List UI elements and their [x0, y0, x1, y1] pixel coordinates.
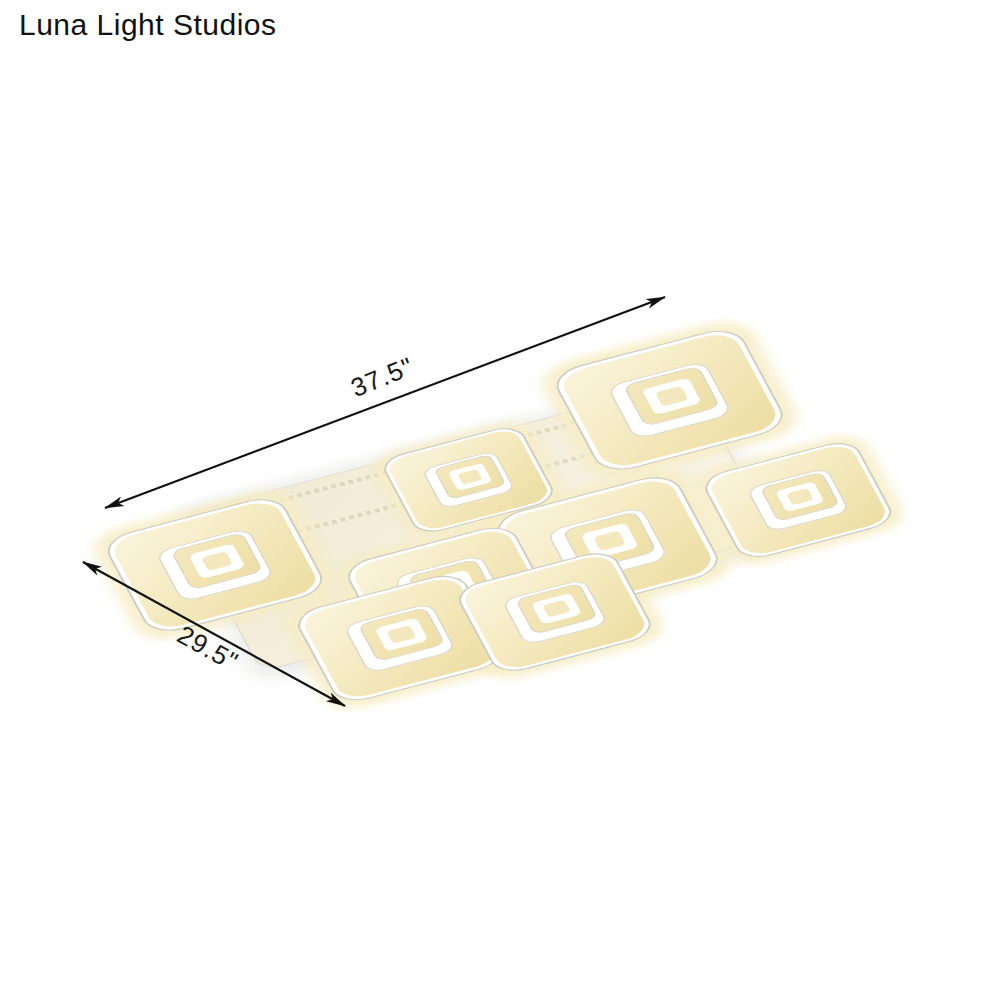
product-image: Luna Light Studios — [0, 0, 1000, 1000]
product-illustration: 37.5" 29.5" — [0, 0, 1000, 1000]
ceiling-light-fixture — [62, 302, 933, 759]
